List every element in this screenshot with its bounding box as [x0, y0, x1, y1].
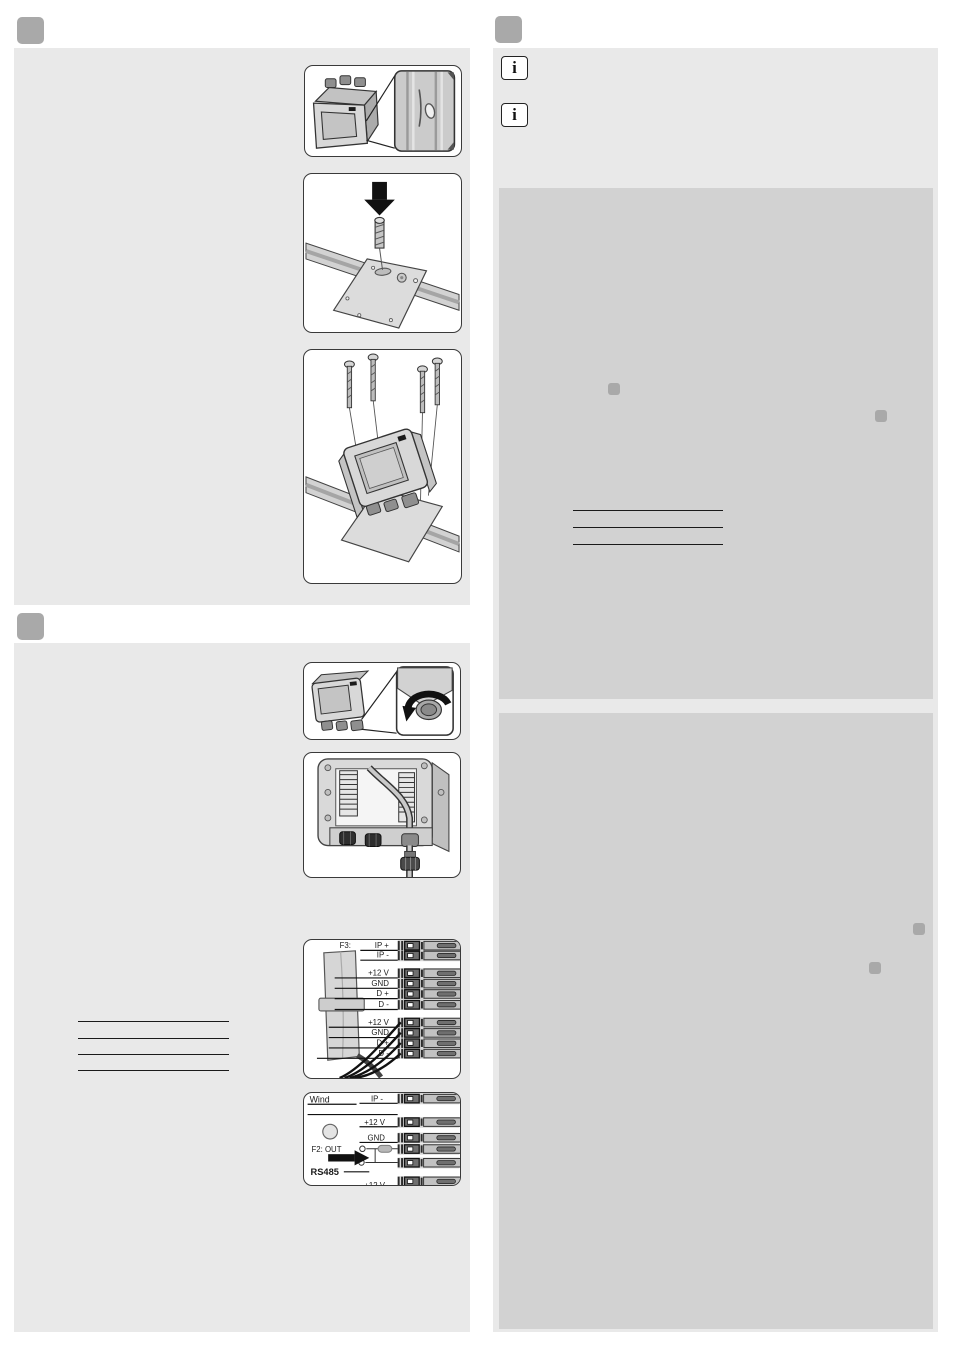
terminal-label: IP -: [371, 1094, 383, 1103]
terminal-label: D +: [376, 989, 389, 998]
loose-counter-nut: [401, 857, 420, 870]
info-icon-glyph: i: [512, 105, 517, 125]
termination-jumper: [378, 1145, 392, 1152]
detail-inset: [397, 667, 454, 735]
terminal-label: +12 V: [364, 1118, 385, 1127]
terminal-label: +12 V: [364, 1181, 385, 1185]
detail-inset: [395, 71, 455, 151]
wall-anchor: [375, 217, 384, 248]
section-number-block-left-2: [17, 613, 44, 640]
terminal-label: D -: [378, 1049, 389, 1058]
blank-line: [78, 1021, 229, 1022]
gland-nut: [402, 834, 419, 847]
section-number-block-left-1: [17, 17, 44, 44]
screw: [418, 366, 428, 413]
info-icon-glyph: i: [512, 58, 517, 78]
output-label: F2: OUT: [312, 1145, 342, 1154]
terminal-label: +12 V: [368, 1018, 390, 1027]
terminal-label: GND: [368, 1133, 386, 1142]
blank-line: [573, 510, 723, 511]
screw: [344, 361, 354, 408]
terminal-rows: [398, 1094, 460, 1185]
diagram-label: F3:: [340, 941, 351, 950]
illustration-screws-device: [303, 349, 462, 584]
bus-label: RS485: [311, 1167, 339, 1177]
bullet-marker: [875, 410, 887, 422]
blank-line: [78, 1070, 229, 1071]
info-icon: i: [501, 56, 528, 80]
callout-line: [366, 140, 394, 148]
cable-glands: [325, 76, 365, 88]
illustration-gland-rotation-detail: [303, 662, 461, 740]
illustration-enclosure-cable: [303, 752, 461, 878]
terminal-label: GND: [371, 1028, 389, 1037]
bullet-marker: [869, 962, 881, 974]
right-panel-inner-top: [499, 188, 933, 699]
terminal-label: IP -: [377, 951, 389, 960]
manual-page: i i: [0, 0, 954, 1349]
callout-line: [362, 672, 397, 720]
section-number-block-right: [495, 16, 522, 43]
diagram-f3-terminals: F3: IP + IP - +12 V GND D + D - +12 V GN…: [303, 939, 461, 1079]
blank-line: [573, 544, 723, 545]
info-icon: i: [501, 103, 528, 127]
sensor-port-circle: [323, 1124, 338, 1139]
device-label: Wind: [310, 1094, 330, 1104]
diagram-wind-rs485: Wind IP - +12 V GND F2: OUT RS485 +12 V: [303, 1092, 461, 1186]
screws: [344, 354, 442, 413]
illustration-anchor-mounting-plate: [303, 173, 462, 333]
sensor-device: [314, 76, 379, 148]
right-panel-inner-bottom: [499, 713, 933, 1329]
bullet-marker: [608, 383, 620, 395]
terminal-label: IP +: [375, 941, 389, 950]
illustration-device-slot-detail: [304, 65, 462, 157]
terminal-label: GND: [371, 979, 389, 988]
terminal-label: D -: [378, 1000, 389, 1009]
blank-line: [78, 1038, 229, 1039]
blank-line: [78, 1054, 229, 1055]
terminal-label: +12 V: [368, 968, 390, 977]
callout-line: [362, 729, 397, 733]
bullet-marker: [913, 923, 925, 935]
blank-line: [573, 527, 723, 528]
terminal-strip-left: [340, 771, 358, 816]
terminal-label: D +: [376, 1038, 389, 1047]
screw: [432, 358, 442, 405]
down-arrow-icon: [364, 182, 395, 216]
screw: [368, 354, 378, 401]
sensor-device: [311, 669, 375, 735]
